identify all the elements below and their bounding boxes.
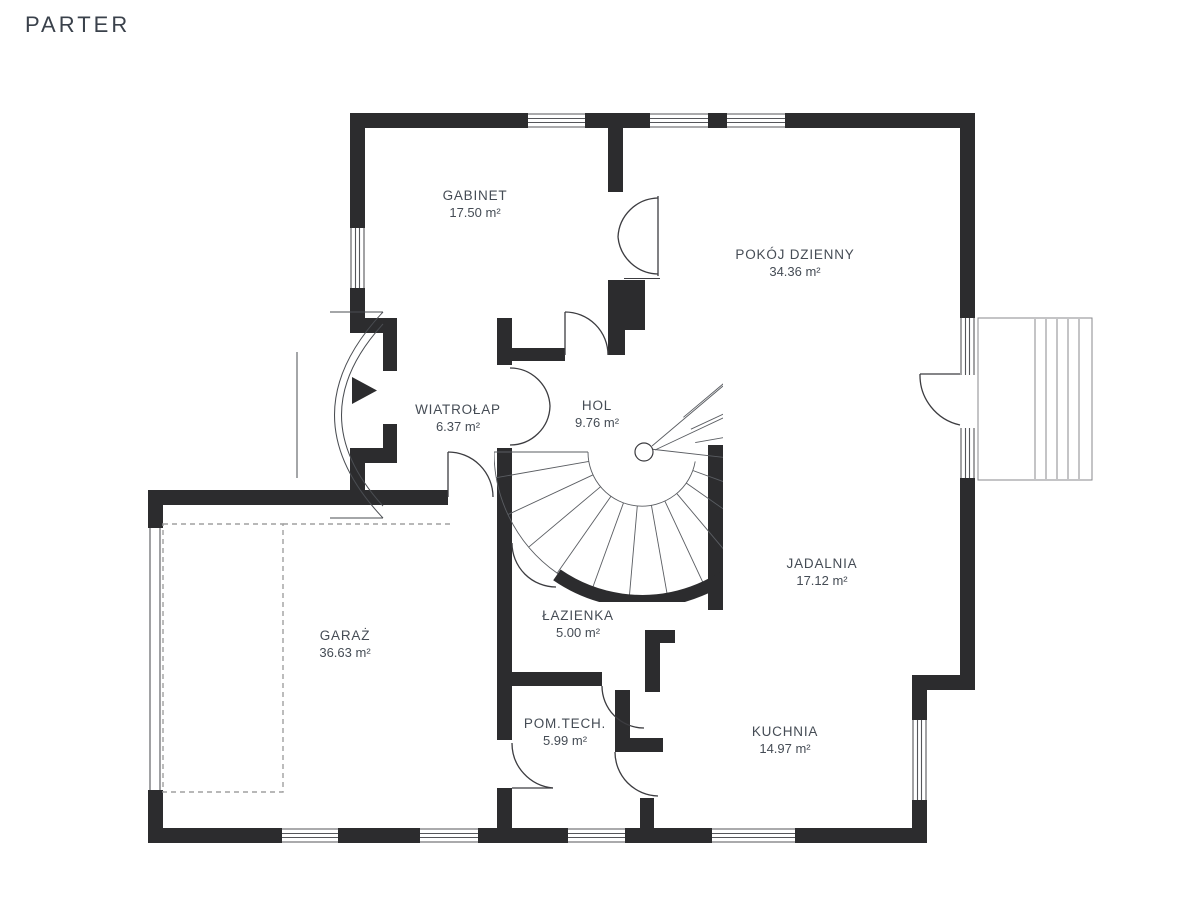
window-top-3 bbox=[727, 114, 785, 127]
room-area: 17.50 m² bbox=[443, 205, 508, 220]
room-label-pomtech: POM.TECH. 5.99 m² bbox=[524, 716, 606, 748]
room-label-garaz: GARAŻ 36.63 m² bbox=[319, 628, 370, 660]
room-label-wiatrolap: WIATROŁAP 6.37 m² bbox=[415, 402, 501, 434]
room-area: 14.97 m² bbox=[752, 741, 818, 756]
window-top-1 bbox=[528, 114, 585, 127]
garage-parking-outline bbox=[163, 524, 452, 792]
floor-plan-canvas bbox=[0, 0, 1200, 900]
door-gabinet-double bbox=[618, 196, 660, 279]
spiral-staircase bbox=[494, 357, 790, 602]
room-label-lazienka: ŁAZIENKA 5.00 m² bbox=[542, 608, 614, 640]
window-gabinet-left bbox=[351, 228, 364, 288]
window-garage-left bbox=[150, 528, 160, 790]
room-label-pokoj-dzienny: POKÓJ DZIENNY 34.36 m² bbox=[735, 247, 854, 279]
window-right-1 bbox=[961, 318, 974, 375]
room-area: 6.37 m² bbox=[415, 419, 501, 434]
room-area: 9.76 m² bbox=[575, 415, 619, 430]
window-right-2 bbox=[961, 428, 974, 478]
room-label-kuchnia: KUCHNIA 14.97 m² bbox=[752, 724, 818, 756]
door-wiatrolap-hol bbox=[510, 368, 550, 445]
room-label-hol: HOL 9.76 m² bbox=[575, 398, 619, 430]
window-bottom-4 bbox=[712, 829, 795, 842]
room-label-gabinet: GABINET 17.50 m² bbox=[443, 188, 508, 220]
entrance-arrow-icon bbox=[352, 377, 377, 404]
room-name: JADALNIA bbox=[787, 556, 858, 571]
room-name: POKÓJ DZIENNY bbox=[735, 247, 854, 262]
floor-plan-page: PARTER GABINET 17.50 m² POKÓJ DZIENNY 34… bbox=[0, 0, 1200, 900]
door-garage-pomtech bbox=[512, 743, 553, 788]
room-area: 17.12 m² bbox=[787, 573, 858, 588]
room-name: GARAŻ bbox=[319, 628, 370, 643]
entrance-porch bbox=[297, 312, 383, 518]
room-name: WIATROŁAP bbox=[415, 402, 501, 417]
terrace-steps bbox=[978, 318, 1092, 480]
room-name: ŁAZIENKA bbox=[542, 608, 614, 623]
door-garage-wiatrolap bbox=[448, 452, 493, 497]
room-name: HOL bbox=[575, 398, 619, 413]
room-area: 34.36 m² bbox=[735, 264, 854, 279]
window-bottom-1 bbox=[282, 829, 338, 842]
room-name: KUCHNIA bbox=[752, 724, 818, 739]
door-terrace bbox=[920, 374, 960, 425]
room-area: 5.00 m² bbox=[542, 625, 614, 640]
window-bottom-2 bbox=[420, 829, 478, 842]
room-area: 5.99 m² bbox=[524, 733, 606, 748]
door-gabinet-hol bbox=[565, 312, 608, 355]
room-area: 36.63 m² bbox=[319, 645, 370, 660]
window-kitchen-right bbox=[913, 720, 926, 800]
door-bathroom bbox=[512, 543, 556, 587]
window-bottom-3 bbox=[568, 829, 625, 842]
page-title: PARTER bbox=[25, 12, 130, 38]
window-top-2 bbox=[650, 114, 708, 127]
door-pomtech-kuchnia bbox=[615, 752, 658, 796]
room-name: POM.TECH. bbox=[524, 716, 606, 731]
room-label-jadalnia: JADALNIA 17.12 m² bbox=[787, 556, 858, 588]
room-name: GABINET bbox=[443, 188, 508, 203]
